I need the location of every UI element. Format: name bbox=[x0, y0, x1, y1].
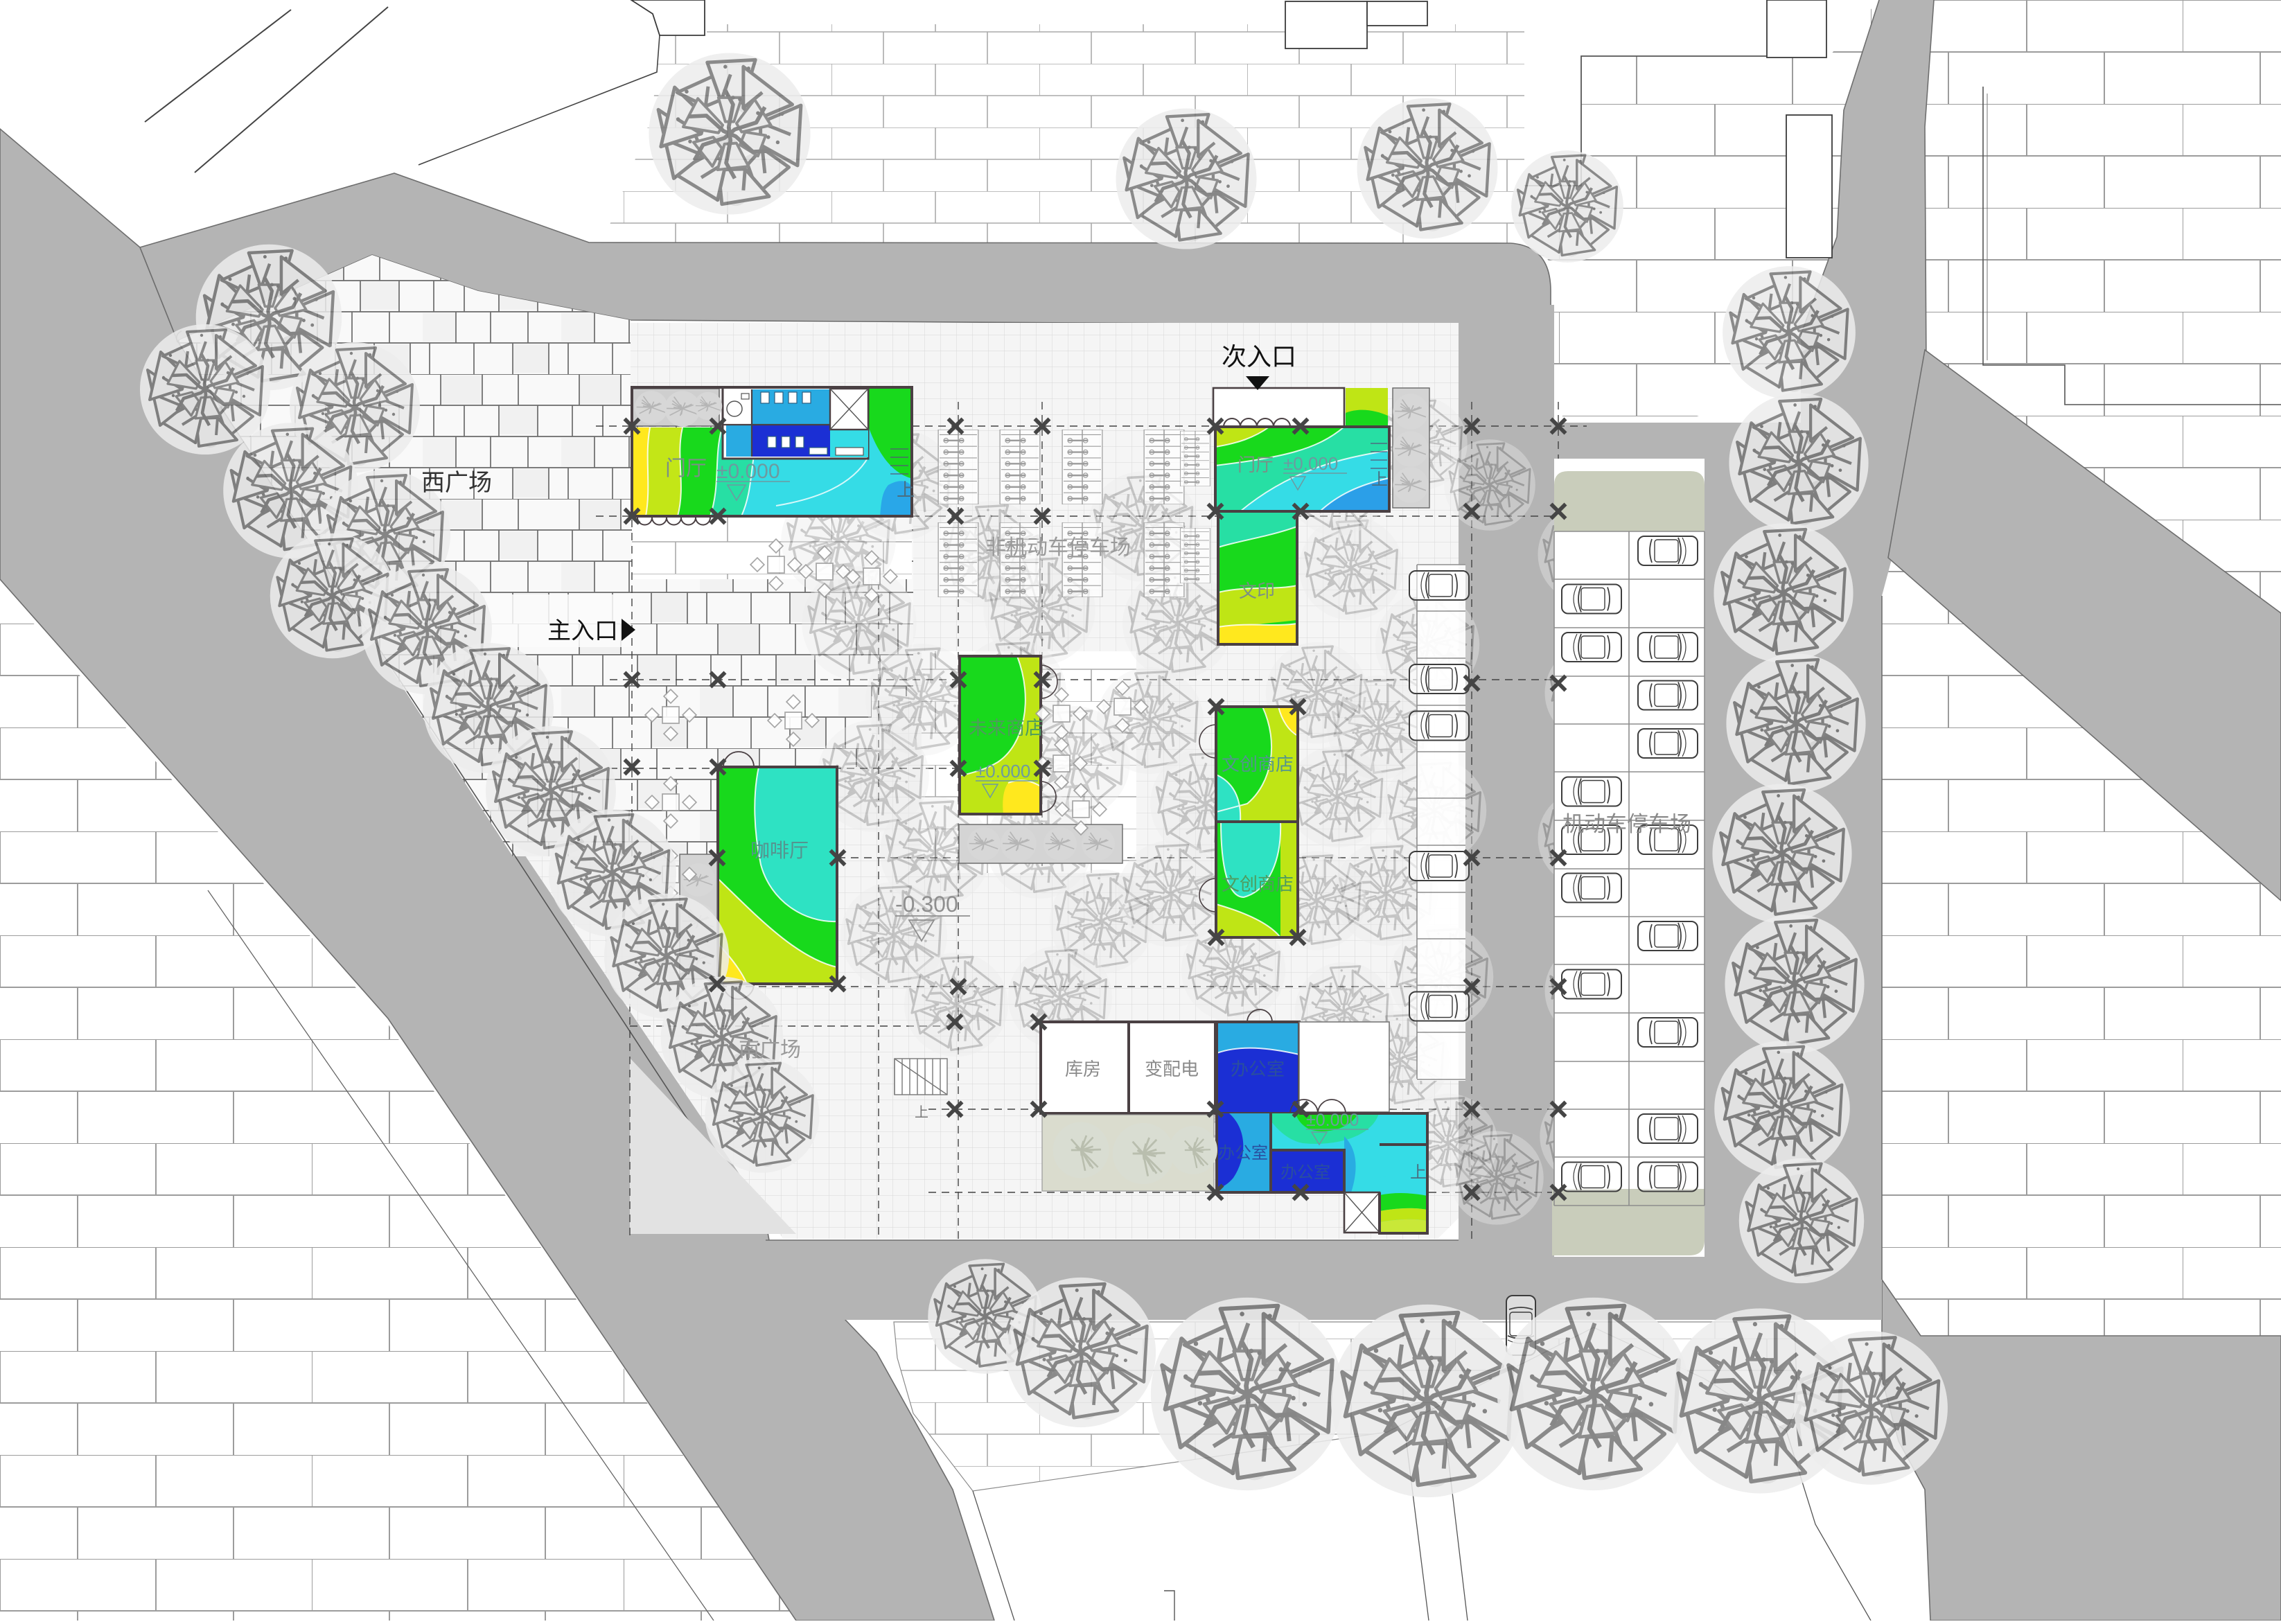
svg-text:变配电: 变配电 bbox=[1145, 1059, 1199, 1079]
svg-text:文创商店: 文创商店 bbox=[1222, 874, 1294, 894]
svg-text:门厅: 门厅 bbox=[665, 457, 707, 480]
svg-text:上: 上 bbox=[897, 479, 915, 500]
svg-text:办公室: 办公室 bbox=[1218, 1144, 1268, 1163]
svg-text:办公室: 办公室 bbox=[1231, 1059, 1285, 1079]
svg-text:咖啡厅: 咖啡厅 bbox=[750, 840, 809, 861]
svg-text:±0.000: ±0.000 bbox=[976, 761, 1030, 782]
svg-text:次入口: 次入口 bbox=[1222, 342, 1296, 371]
svg-text:±0.000: ±0.000 bbox=[1283, 453, 1338, 474]
svg-text:上: 上 bbox=[1410, 1163, 1427, 1182]
svg-text:未来商店: 未来商店 bbox=[969, 718, 1043, 739]
svg-text:上: 上 bbox=[915, 1104, 928, 1120]
svg-text:±0.000: ±0.000 bbox=[716, 460, 780, 483]
svg-text:南广场: 南广场 bbox=[739, 1039, 801, 1061]
svg-text:主入口: 主入口 bbox=[547, 618, 618, 644]
svg-text:办公室: 办公室 bbox=[1280, 1163, 1330, 1182]
svg-text:上: 上 bbox=[1371, 470, 1388, 489]
svg-text:-0.300: -0.300 bbox=[895, 892, 958, 917]
svg-text:西广场: 西广场 bbox=[421, 470, 492, 496]
svg-text:±0.000: ±0.000 bbox=[1306, 1111, 1359, 1130]
svg-text:非机动车停车场: 非机动车停车场 bbox=[985, 536, 1131, 559]
svg-text:机动车停车场: 机动车停车场 bbox=[1562, 812, 1691, 836]
svg-text:文创商店: 文创商店 bbox=[1222, 754, 1294, 775]
svg-text:库房: 库房 bbox=[1065, 1059, 1101, 1079]
svg-text:门厅: 门厅 bbox=[1238, 454, 1274, 475]
svg-text:文印: 文印 bbox=[1239, 581, 1275, 601]
